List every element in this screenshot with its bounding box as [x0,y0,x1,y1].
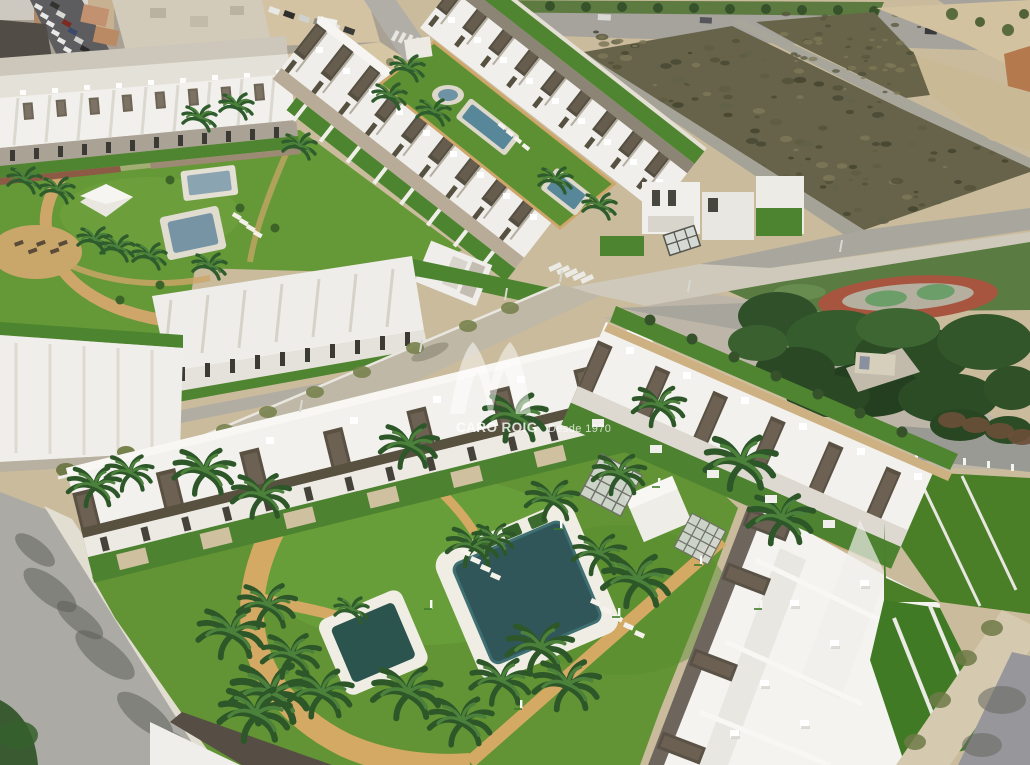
svg-text:CARO ROIG: CARO ROIG [456,420,538,435]
svg-text:Desde 1970: Desde 1970 [548,423,611,435]
